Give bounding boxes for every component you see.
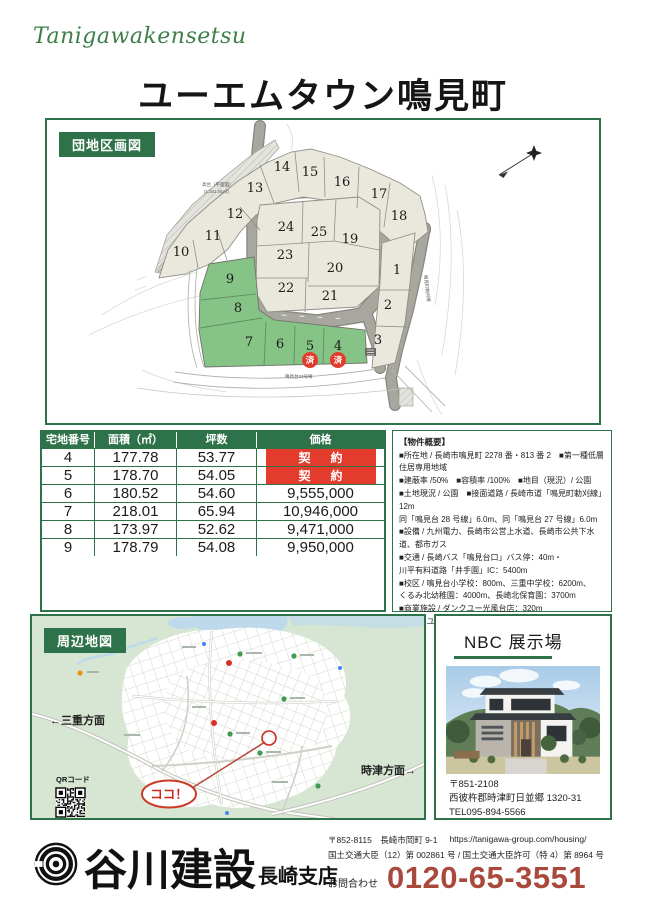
price-table-header: 宅地番号 面積（㎡） 坪数 価格 xyxy=(42,432,384,448)
cell-lot-no: 5 xyxy=(42,467,94,484)
area-map-label: 周辺地図 xyxy=(44,628,126,653)
lot-number: 4 xyxy=(334,339,342,354)
lot-number: 14 xyxy=(274,160,291,175)
cell-area: 177.78 xyxy=(94,449,176,466)
cell-price: 10,946,000 xyxy=(256,503,384,520)
lot-number: 10 xyxy=(173,245,190,260)
lot-number: 12 xyxy=(227,207,244,222)
lot-number: 23 xyxy=(277,248,294,263)
lot-number: 22 xyxy=(278,281,295,296)
bottom-road-label: 鳴見台23号線 xyxy=(285,373,313,380)
footer: 谷川建設 長崎支店 〒852-8115 長崎市岡町 9-1 https://ta… xyxy=(0,830,646,897)
cell-area: 178.70 xyxy=(94,467,176,484)
lot-number: 9 xyxy=(226,272,234,287)
site-plan-panel: 団地区画図 xyxy=(45,118,601,425)
cell-area: 218.01 xyxy=(94,503,176,520)
cell-lot-no: 7 xyxy=(42,503,94,520)
price-table-body: 4 177.78 53.77 契 約 5 178.70 54.05 契 約 6 … xyxy=(42,448,384,556)
lot-number: 7 xyxy=(245,335,253,350)
slope-label: 高台（平面図） xyxy=(202,181,234,188)
lot-number: 16 xyxy=(334,175,351,190)
lot-number: 21 xyxy=(322,289,339,304)
cell-tsubo: 65.94 xyxy=(176,503,256,520)
cell-lot-no: 6 xyxy=(42,485,94,502)
street-grid-2 xyxy=(165,661,327,761)
table-row: 8 173.97 52.62 9,471,000 xyxy=(42,520,384,538)
lot-number: 8 xyxy=(234,301,242,316)
flyer-page: Tanigawakensetsu ユーエムタウン鳴見町 団地区画図 xyxy=(0,0,646,897)
cell-tsubo: 54.05 xyxy=(176,467,256,484)
cell-price: 9,471,000 xyxy=(256,521,384,538)
cell-area: 173.97 xyxy=(94,521,176,538)
cell-tsubo: 52.62 xyxy=(176,521,256,538)
page-title: ユーエムタウン鳴見町 xyxy=(0,68,646,119)
branch-name: 長崎支店 xyxy=(258,860,338,889)
cell-area: 180.52 xyxy=(94,485,176,502)
overview-line: ■校区 / 鳴見台小学校：800m、三重中学校：6200m、 xyxy=(399,578,605,591)
area-map-panel: 周辺地図 xyxy=(30,614,426,820)
overview-line: ■所在地 / 長崎市鳴見町 2278 番・813 番 2 ■第一種低層住居専用地… xyxy=(399,450,605,476)
table-row: 4 177.78 53.77 契 約 xyxy=(42,448,384,466)
overview-line: くるみ北幼稚園：4000m、長崎北保育園：3700m xyxy=(399,590,605,603)
contact-label: お問合わせ xyxy=(328,875,378,895)
overview-line: ■建蔽率 /50% ■容積率 /100% ■地目（現況）/ 公園 xyxy=(399,475,605,488)
outer-road-faint xyxy=(137,388,407,397)
lot-number: 17 xyxy=(371,187,388,202)
site-plan-label: 団地区画図 xyxy=(59,132,155,157)
side-road-label: 鳴見町勅刈線 xyxy=(422,274,432,302)
footer-info: 〒852-8115 長崎市岡町 9-1 https://tanigawa-gro… xyxy=(328,834,642,895)
overview-line: ■交通 / 長崎バス「鳴見台口」バス停：40m・ xyxy=(399,552,605,565)
overview-line: ■設備 / 九州電力、長崎市公営上水道、長崎市公共下水道、都市ガス xyxy=(399,526,605,552)
exhibit-title: NBC 展示場 xyxy=(464,628,563,653)
lot-number: 1 xyxy=(393,263,401,278)
lot-number: 2 xyxy=(384,298,392,313)
lot-number: 11 xyxy=(205,229,222,244)
direction-label-togitsu: 時津方面→ xyxy=(361,762,416,778)
lot-number: 5 xyxy=(306,339,314,354)
exhibit-address-block: 〒851-2108 西彼杵郡時津町日並郷 1320-31 TEL095-894-… xyxy=(449,778,582,819)
contract-badge: 契 約 xyxy=(266,449,376,466)
slope-area-label: (1,341.91㎡) xyxy=(204,188,230,194)
company-logo-icon xyxy=(33,841,79,887)
cell-lot-no: 4 xyxy=(42,449,94,466)
property-overview-lines: ■所在地 / 長崎市鳴見町 2278 番・813 番 2 ■第一種低層住居専用地… xyxy=(399,450,605,629)
lot-number: 20 xyxy=(327,261,344,276)
lot-number: 24 xyxy=(278,220,295,235)
overview-line: 川平有料道路「井手園」IC：5400m xyxy=(399,565,605,578)
exhibit-tel: TEL095-894-5566 xyxy=(449,806,582,820)
cell-price: 契 約 xyxy=(256,449,384,466)
lot-number: 19 xyxy=(342,232,359,247)
table-row: 9 178.79 54.08 9,950,000 xyxy=(42,538,384,556)
hatch-detail xyxy=(399,388,413,406)
cell-area: 178.79 xyxy=(94,539,176,556)
exhibit-address: 西彼杵郡時津町日並郷 1320-31 xyxy=(449,792,582,806)
contract-badge: 契 約 xyxy=(266,467,376,484)
sold-badge-text: 済 xyxy=(334,355,343,365)
direction-label-mie: ←三重方面 xyxy=(50,712,105,728)
lot-number: 18 xyxy=(391,209,408,224)
lot-number: 25 xyxy=(311,225,328,240)
property-overview-box: 【物件概要】 ■所在地 / 長崎市鳴見町 2278 番・813 番 2 ■第一種… xyxy=(392,430,612,612)
overview-line: 同「鳴見台 28 号線」6.0m、同「鳴見台 27 号線」6.0m xyxy=(399,514,605,527)
col-header-area: 面積（㎡） xyxy=(94,432,176,448)
lot-number: 6 xyxy=(276,337,284,352)
col-header-tsubo: 坪数 xyxy=(176,432,256,448)
price-table: 宅地番号 面積（㎡） 坪数 価格 4 177.78 53.77 契 約 5 17… xyxy=(40,430,386,612)
table-row: 5 178.70 54.05 契 約 xyxy=(42,466,384,484)
site-plan-map: 高台（平面図） (1,341.91㎡) 鳴見台23号線 鳴見町勅刈線 12345… xyxy=(47,120,599,423)
compass-icon xyxy=(499,145,542,178)
cell-tsubo: 53.77 xyxy=(176,449,256,466)
table-row: 6 180.52 54.60 9,555,000 xyxy=(42,484,384,502)
qr-code xyxy=(56,788,85,817)
lot-number: 3 xyxy=(374,333,382,348)
lot-number: 13 xyxy=(247,181,264,196)
exhibit-title-underline xyxy=(454,656,552,659)
exhibit-panel: NBC 展示場 xyxy=(434,614,612,820)
phone-number: 0120-65-3551 xyxy=(387,862,586,895)
here-label: ココ！ xyxy=(150,788,188,802)
sold-badge-text: 済 xyxy=(306,355,315,365)
property-overview-title: 【物件概要】 xyxy=(399,436,605,450)
company-name: 谷川建設 xyxy=(84,836,256,897)
cell-tsubo: 54.60 xyxy=(176,485,256,502)
overview-line: ■土地現況 / 公園 ■接面道路 / 長崎市道「鳴見町勅刈線」12m xyxy=(399,488,605,514)
cell-price: 9,555,000 xyxy=(256,485,384,502)
cell-lot-no: 8 xyxy=(42,521,94,538)
footer-url: https://tanigawa-group.com/housing/ xyxy=(449,834,586,846)
table-row: 7 218.01 65.94 10,946,000 xyxy=(42,502,384,520)
col-header-price: 価格 xyxy=(256,432,384,448)
cell-lot-no: 9 xyxy=(42,539,94,556)
lot-number: 15 xyxy=(302,165,319,180)
col-header-lot-no: 宅地番号 xyxy=(42,432,94,448)
cell-price: 契 約 xyxy=(256,467,384,484)
cell-tsubo: 54.08 xyxy=(176,539,256,556)
footer-address: 〒852-8115 長崎市岡町 9-1 xyxy=(328,834,437,846)
cell-price: 9,950,000 xyxy=(256,539,384,556)
exhibit-postal: 〒851-2108 xyxy=(449,778,582,792)
model-house-photo xyxy=(446,666,600,774)
brand-script-logo: Tanigawakensetsu xyxy=(33,24,247,49)
qr-code-label: QRコード xyxy=(56,774,90,785)
